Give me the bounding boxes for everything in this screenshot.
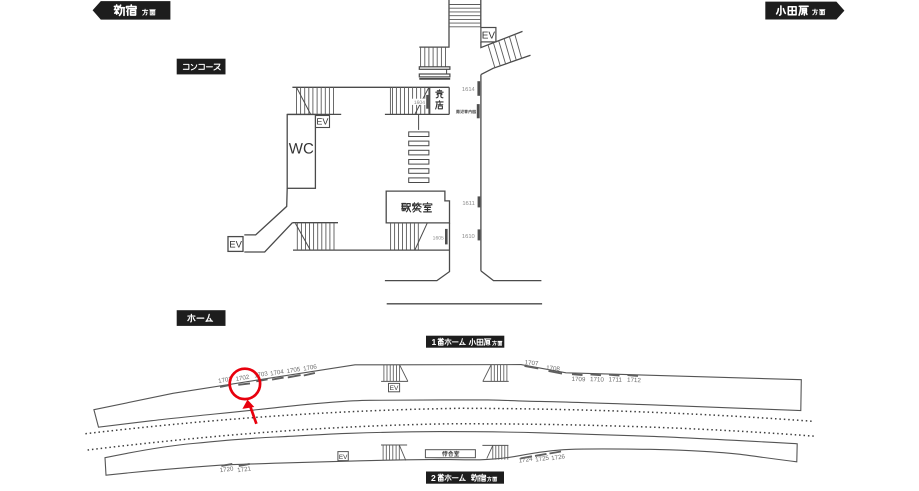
svg-text:2: 2 <box>431 473 436 483</box>
svg-text:1707: 1707 <box>524 359 539 367</box>
svg-text:1: 1 <box>432 337 437 347</box>
svg-text:1708: 1708 <box>546 365 561 373</box>
svg-text:1611: 1611 <box>462 200 474 207</box>
svg-text:1605: 1605 <box>433 236 444 242</box>
svg-text:EV: EV <box>390 385 399 392</box>
svg-text:1712: 1712 <box>627 377 642 384</box>
svg-text:1614: 1614 <box>462 86 476 93</box>
svg-text:1710: 1710 <box>590 376 605 383</box>
svg-text:1604: 1604 <box>414 100 425 106</box>
svg-text:EV: EV <box>482 31 496 42</box>
svg-text:EV: EV <box>339 454 348 461</box>
svg-text:EV: EV <box>316 117 328 127</box>
svg-text:1709: 1709 <box>571 376 586 383</box>
svg-text:EV: EV <box>229 240 242 251</box>
svg-text:WC: WC <box>289 140 314 157</box>
svg-text:1610: 1610 <box>462 233 475 240</box>
svg-text:1711: 1711 <box>608 376 622 383</box>
